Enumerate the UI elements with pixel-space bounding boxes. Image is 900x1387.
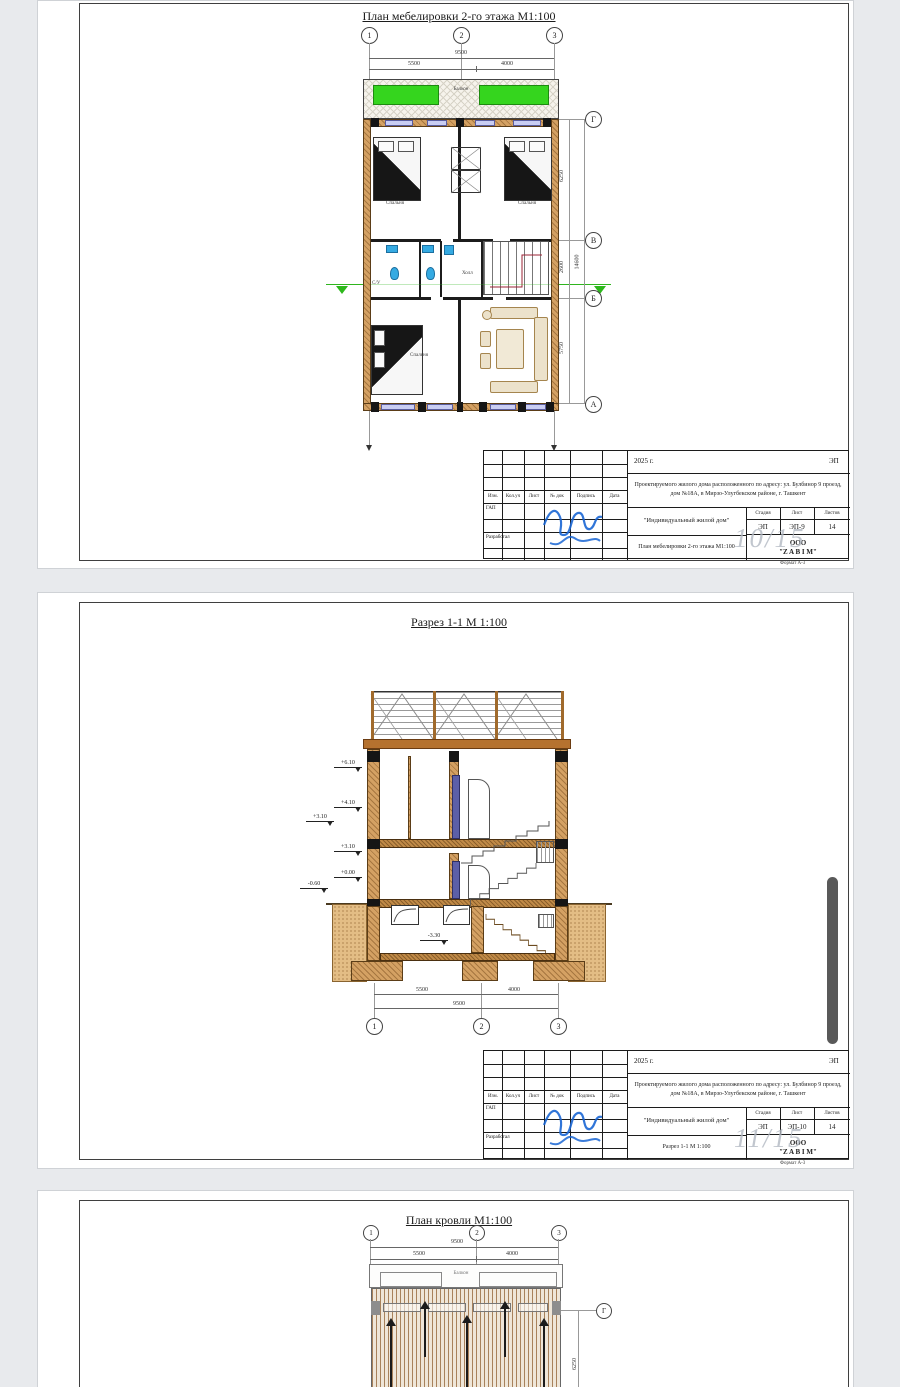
page-watermark: 10/15 xyxy=(734,523,806,554)
stamp-code: ЭП xyxy=(829,1057,839,1065)
axis-leader xyxy=(369,411,370,445)
railing-post xyxy=(433,691,436,741)
stamp-stage-header: Стадия xyxy=(746,508,780,519)
wall xyxy=(551,119,559,411)
basement-window xyxy=(391,905,419,925)
format-note: Формат А-3 xyxy=(780,1161,805,1166)
window xyxy=(475,120,495,126)
stamp-object-name: "Индивидуальный жилой дом" xyxy=(629,509,744,533)
pier xyxy=(546,402,554,412)
axis-bubble-3: 3 xyxy=(550,1018,567,1035)
window xyxy=(385,120,413,126)
dimension-label: 5750 xyxy=(559,342,565,354)
stamp-year: 2025 г. xyxy=(634,1057,654,1065)
dimension-label: 9500 xyxy=(453,1001,465,1007)
elevation-mark: +3.10 xyxy=(334,844,362,852)
basement-floor xyxy=(380,953,555,961)
wall xyxy=(506,297,551,300)
bed-furniture xyxy=(504,137,552,201)
elevation-mark: +4.10 xyxy=(334,800,362,808)
dimension-label: 5500 xyxy=(413,1251,425,1257)
axis-leader xyxy=(370,1239,371,1264)
room-label-bedroom: Спальня xyxy=(410,353,428,358)
roof-beam xyxy=(363,739,571,749)
slope-arrow-icon xyxy=(466,1323,468,1387)
stamp-sheets-header: Листов xyxy=(814,508,850,519)
axis-leader xyxy=(461,43,462,79)
stamp-col-izm: Изм. xyxy=(484,1091,502,1102)
sofa-furniture xyxy=(534,317,548,381)
dimension-line xyxy=(369,69,554,70)
railing-post xyxy=(561,691,564,741)
window xyxy=(427,404,453,410)
pier xyxy=(518,402,526,412)
wall xyxy=(419,241,421,297)
wall xyxy=(367,749,380,906)
dimension-tick xyxy=(476,66,477,72)
lintel xyxy=(555,751,568,762)
lintel xyxy=(449,751,459,762)
railing-post xyxy=(495,691,498,741)
format-note: Формат А-3 xyxy=(780,561,805,566)
signature xyxy=(536,1091,616,1153)
armchair-furniture xyxy=(480,353,491,369)
room-label-balcony: Балкон xyxy=(442,87,480,92)
wall xyxy=(458,297,461,403)
stamp-year: 2025 г. xyxy=(634,457,654,465)
signature xyxy=(536,491,616,553)
sink-fixture xyxy=(386,245,398,253)
section-mark-icon xyxy=(326,284,363,285)
sofa-furniture xyxy=(490,381,538,393)
axis-bubble-1: 1 xyxy=(363,1225,379,1241)
axis-bubble-3: 3 xyxy=(551,1225,567,1241)
dimension-label: 4000 xyxy=(508,987,520,993)
section-cut-line xyxy=(371,284,551,285)
lintel xyxy=(367,751,380,762)
page-title: Разрез 1-1 М 1:100 xyxy=(334,615,584,630)
roof-beam-segment xyxy=(428,1303,466,1312)
elevation-mark: -3.30 xyxy=(420,933,448,941)
sofa-furniture xyxy=(490,307,538,319)
roof-beam-segment xyxy=(383,1303,421,1312)
pier xyxy=(371,402,379,412)
stamp-address: Проектируемого жилого дома расположенног… xyxy=(630,1074,846,1106)
roof-beam-segment xyxy=(518,1303,548,1312)
planter-right xyxy=(479,85,549,105)
stamp-sheets-value: 14 xyxy=(814,1120,850,1134)
stamp-col-koluch: Кол.уч xyxy=(502,491,524,502)
leader-arrow-icon xyxy=(366,445,372,451)
dimension-line xyxy=(569,119,570,404)
pier xyxy=(543,118,551,127)
slope-arrow-icon xyxy=(504,1309,506,1357)
stamp-sheets-header: Листов xyxy=(814,1108,850,1119)
stamp-col-koluch: Кол.уч xyxy=(502,1091,524,1102)
stair-flight xyxy=(486,914,554,958)
wall xyxy=(371,297,431,300)
section-arrow-icon xyxy=(336,286,348,294)
axis-bubble-2: 2 xyxy=(453,27,470,44)
railing-post xyxy=(371,691,374,741)
axis-bubble-2: 2 xyxy=(473,1018,490,1035)
stamp-role-developer: Разработал xyxy=(486,535,510,540)
basement-wall xyxy=(555,906,568,961)
footing xyxy=(462,961,498,981)
door-panel xyxy=(452,861,460,899)
wardrobe-furniture xyxy=(451,147,481,193)
pier xyxy=(479,402,487,412)
wall xyxy=(363,119,371,411)
stamp-doc-title: План мебелировки 2-го этажа М1:100 xyxy=(629,537,744,558)
stamp-doc-title: Разрез 1-1 М 1:100 xyxy=(629,1137,744,1158)
axis-bubble-g: Г xyxy=(596,1303,612,1319)
dimension-label: 6250 xyxy=(572,1358,578,1370)
dimension-label: 5500 xyxy=(416,987,428,993)
stamp-code: ЭП xyxy=(829,457,839,465)
wall xyxy=(443,297,493,300)
basement-pier xyxy=(471,906,484,953)
basement-wall xyxy=(367,906,380,961)
room-label-hall: Холл xyxy=(462,271,473,276)
wall xyxy=(371,239,441,242)
lintel xyxy=(367,839,380,849)
elevation-mark: -0.60 xyxy=(300,881,328,889)
dimension-line xyxy=(369,58,554,59)
scrollbar-thumb[interactable] xyxy=(827,877,838,1044)
axis-leader xyxy=(558,1239,559,1264)
wall xyxy=(408,756,411,839)
dimension-line xyxy=(374,1008,558,1009)
dimension-label: 5500 xyxy=(408,61,420,67)
dimension-line xyxy=(584,119,585,404)
axis-bubble-2: 2 xyxy=(469,1225,485,1241)
window xyxy=(524,404,546,410)
window xyxy=(513,120,541,126)
pier xyxy=(418,402,426,412)
toilet-fixture xyxy=(390,267,399,280)
axis-leader xyxy=(369,43,370,79)
table-furniture xyxy=(496,329,524,369)
dimension-label: 9500 xyxy=(446,50,476,56)
stair-landing xyxy=(536,841,554,863)
planter-left xyxy=(373,85,439,105)
room-label-bedroom: Спальня xyxy=(386,201,404,206)
axis-bubble-v: В xyxy=(585,232,602,249)
axis-leader xyxy=(554,43,555,79)
footing xyxy=(351,961,403,981)
toilet-fixture xyxy=(426,267,435,280)
stamp-stage-header: Стадия xyxy=(746,1108,780,1119)
window xyxy=(381,404,415,410)
stamp-sheet-header: Лист xyxy=(780,1108,814,1119)
roof-truss xyxy=(371,691,564,741)
document-viewer: План мебелировки 2-го этажа М1:100 1 2 3… xyxy=(0,0,900,1387)
document-page-1: План мебелировки 2-го этажа М1:100 1 2 3… xyxy=(37,0,854,569)
door-panel xyxy=(452,775,460,839)
dimension-label: 2600 xyxy=(559,261,565,273)
room-label-bedroom: Спальня xyxy=(518,201,536,206)
armchair-furniture xyxy=(480,331,491,347)
elevation-mark: +6.10 xyxy=(334,760,362,768)
document-page-2: Разрез 1-1 М 1:100 xyxy=(37,592,854,1169)
dimension-line xyxy=(370,1247,558,1248)
page-title: План мебелировки 2-го этажа М1:100 xyxy=(334,9,584,24)
lintel xyxy=(555,839,568,849)
stamp-object-name: "Индивидуальный жилой дом" xyxy=(629,1109,744,1133)
axis-bubble-1: 1 xyxy=(366,1018,383,1035)
axis-bubble-g: Г xyxy=(585,111,602,128)
footing xyxy=(533,961,585,981)
parapet-panel xyxy=(380,1272,442,1287)
bed-furniture xyxy=(373,137,421,201)
axis-bubble-1: 1 xyxy=(361,27,378,44)
pier xyxy=(457,402,463,412)
stamp-role-chief: ГАП xyxy=(486,1106,496,1111)
stair-flight xyxy=(461,863,536,906)
sink-fixture xyxy=(422,245,434,253)
pier xyxy=(456,118,464,127)
slope-arrow-icon xyxy=(543,1326,545,1387)
wall xyxy=(440,241,442,297)
roof-corner-block xyxy=(552,1301,561,1315)
stamp-role-chief: ГАП xyxy=(486,506,496,511)
pier xyxy=(371,118,379,127)
room-label-balcony: Балкон xyxy=(442,1271,480,1276)
basement-window xyxy=(443,905,470,925)
stamp-col-izm: Изм. xyxy=(484,491,502,502)
roof-parapet xyxy=(369,1264,563,1288)
page-watermark: 11/15 xyxy=(734,1123,804,1154)
dimension-label: 9500 xyxy=(451,1239,463,1245)
dimension-line xyxy=(578,1310,579,1387)
stamp-sheets-value: 14 xyxy=(814,520,850,534)
section-mark-icon xyxy=(559,284,611,285)
dimension-label: 14600 xyxy=(575,255,581,270)
elevation-mark: +3.10 xyxy=(306,814,334,822)
roof-corner-block xyxy=(371,1301,380,1315)
shower-fixture xyxy=(444,245,454,255)
dimension-label: 4000 xyxy=(501,61,513,67)
wall xyxy=(555,749,568,906)
elevation-mark: +0.00 xyxy=(334,870,362,878)
axis-bubble-3: 3 xyxy=(546,27,563,44)
document-page-3: План кровли М1:100 1 2 3 9500 5500 4000 … xyxy=(37,1190,854,1387)
window xyxy=(427,120,447,126)
stamp-address: Проектируемого жилого дома расположенног… xyxy=(630,474,846,506)
slope-arrow-icon xyxy=(390,1326,392,1387)
axis-bubble-a: А xyxy=(585,396,602,413)
side-table-furniture xyxy=(482,310,492,320)
dimension-label: 6250 xyxy=(559,170,565,182)
dimension-line xyxy=(374,994,558,995)
bed-furniture xyxy=(371,325,423,395)
stamp-role-developer: Разработал xyxy=(486,1135,510,1140)
dimension-tick xyxy=(476,1256,477,1262)
dimension-line xyxy=(370,1259,558,1260)
dimension-label: 4000 xyxy=(506,1251,518,1257)
axis-bubble-b: Б xyxy=(585,290,602,307)
slope-arrow-icon xyxy=(424,1309,426,1357)
stamp-sheet-header: Лист xyxy=(780,508,814,519)
parapet-panel xyxy=(479,1272,557,1287)
window xyxy=(490,404,516,410)
axis-leader xyxy=(554,411,555,445)
